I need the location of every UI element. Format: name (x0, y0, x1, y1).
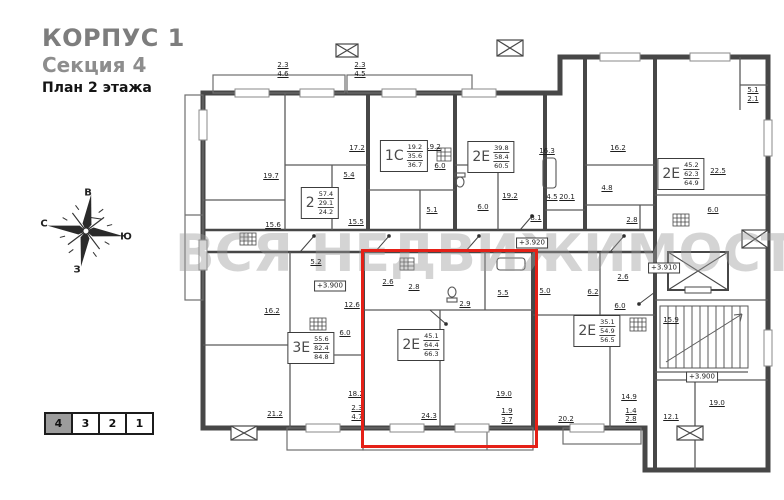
apartment-area-value: 58.4 (493, 153, 509, 162)
apartment-area-value: 56.5 (599, 336, 615, 344)
building-title: КОРПУС 1 (42, 24, 185, 52)
room-area-label: 6.0 (707, 206, 718, 214)
apartment-areas: 45.262.364.9 (683, 161, 699, 187)
room-area-label: 19.7 (263, 172, 279, 180)
floor-plan-page: КОРПУС 1 Секция 4 План 2 этажа (0, 0, 784, 500)
room-area-label: 6.0 (434, 162, 445, 170)
section-tab-4[interactable]: 4 (46, 414, 73, 433)
room-area-label: 22.5 (710, 167, 726, 175)
room-area-label: 6.2 (587, 288, 598, 296)
room-area-label: 12.1 (663, 413, 679, 421)
room-area-label: 16.2 (610, 144, 626, 152)
apartment-type: 1С (385, 149, 404, 163)
section-selector: 4321 (44, 412, 154, 435)
room-area-label: 21.2 (267, 410, 283, 418)
apartment-label[interactable]: 257.429.124.2 (301, 187, 339, 219)
apartment-area-value: 84.8 (313, 353, 329, 361)
apartment-area-value: 82.4 (313, 344, 329, 353)
room-area-label: 15.6 (265, 221, 281, 229)
compass-label-west: З (73, 265, 80, 276)
apartment-area-value: 35.1 (599, 318, 615, 327)
room-area-label: 2.8 (626, 216, 637, 224)
apartment-areas: 57.429.124.2 (318, 190, 334, 216)
room-area-label: 5.0 (539, 287, 550, 295)
room-area-label: 4.8 (601, 184, 612, 192)
apartment-area-value: 19.2 (407, 143, 423, 152)
apartment-area-value: 35.6 (407, 152, 423, 161)
room-area-label: 6.0 (477, 203, 488, 211)
apartment-type: 2Е (578, 324, 596, 338)
room-area-label: 2.1 (747, 95, 758, 103)
apartment-type: 3Е (292, 341, 310, 355)
apartment-areas: 35.154.956.5 (599, 318, 615, 344)
apartment-area-value: 57.4 (318, 190, 334, 199)
room-area-label: 20.1 (559, 193, 575, 201)
room-area-label: 5.1 (747, 86, 758, 94)
room-area-label: 2.6 (617, 273, 628, 281)
compass-label-east: В (84, 188, 92, 199)
apartment-area-value: 24.2 (318, 208, 334, 216)
apartment-areas: 19.235.636.7 (407, 143, 423, 169)
apartment-label[interactable]: 1С19.235.636.7 (380, 140, 428, 172)
apartment-areas: 55.682.484.8 (313, 335, 329, 361)
apartment-type: 2Е (662, 167, 680, 181)
section-tab-2[interactable]: 2 (100, 414, 127, 433)
section-title: Секция 4 (42, 52, 185, 78)
apartment-area-value: 55.6 (313, 335, 329, 344)
room-area-label: 2.3 (277, 61, 288, 69)
section-tab-1[interactable]: 1 (127, 414, 152, 433)
apartment-area-value: 62.3 (683, 170, 699, 179)
apartment-area-value: 54.9 (599, 327, 615, 336)
compass-rose (42, 189, 128, 272)
room-area-label: 20.2 (558, 415, 574, 423)
room-area-label: 1.4 (625, 407, 636, 415)
level-mark: +3.920 (516, 238, 548, 249)
floor-title: План 2 этажа (42, 78, 185, 98)
room-area-label: 4.5 (354, 70, 365, 78)
apartment-label[interactable]: 2Е35.154.956.5 (573, 315, 620, 347)
room-area-label: 12.6 (344, 301, 360, 309)
level-mark: +3.900 (314, 281, 346, 292)
room-area-label: 8.1 (530, 214, 541, 222)
section-tab-3[interactable]: 3 (73, 414, 100, 433)
level-mark: +3.910 (648, 263, 680, 274)
room-area-label: 15.5 (348, 218, 364, 226)
apartment-type: 2Е (472, 150, 490, 164)
room-area-label: 4.6 (277, 70, 288, 78)
room-area-label: 16.3 (539, 147, 555, 155)
room-area-label: 14.9 (621, 393, 637, 401)
room-area-label: 16.2 (264, 307, 280, 315)
room-area-label: 5.2 (310, 258, 321, 266)
apartment-areas: 39.858.460.5 (493, 144, 509, 170)
room-area-label: 19.0 (709, 399, 725, 407)
room-area-label: 5.4 (343, 171, 354, 179)
level-mark: +3.900 (686, 372, 718, 383)
apartment-label[interactable]: 3Е55.682.484.8 (287, 332, 334, 364)
room-area-label: 6.0 (339, 329, 350, 337)
room-area-label: 4.5 (546, 193, 557, 201)
room-area-label: 15.9 (663, 316, 679, 324)
room-area-label: 2.3 (354, 61, 365, 69)
apartment-label[interactable]: 2Е39.858.460.5 (467, 141, 514, 173)
selected-apartment-highlight[interactable] (361, 249, 538, 448)
apartment-area-value: 29.1 (318, 199, 334, 208)
apartment-area-value: 39.8 (493, 144, 509, 153)
room-area-label: 6.0 (614, 302, 625, 310)
apartment-area-value: 60.5 (493, 162, 509, 170)
compass-label-south: Ю (120, 232, 132, 243)
apartment-area-value: 64.9 (683, 179, 699, 187)
compass-label-north: С (40, 219, 47, 230)
room-area-label: 2.8 (625, 415, 636, 423)
apartment-label[interactable]: 2Е45.262.364.9 (657, 158, 704, 190)
title-block: КОРПУС 1 Секция 4 План 2 этажа (42, 24, 185, 98)
apartment-area-value: 36.7 (407, 161, 423, 169)
room-area-label: 19.2 (502, 192, 518, 200)
room-area-label: 5.1 (426, 206, 437, 214)
room-area-label: 17.2 (349, 144, 365, 152)
apartment-type: 2 (306, 196, 315, 210)
apartment-area-value: 45.2 (683, 161, 699, 170)
